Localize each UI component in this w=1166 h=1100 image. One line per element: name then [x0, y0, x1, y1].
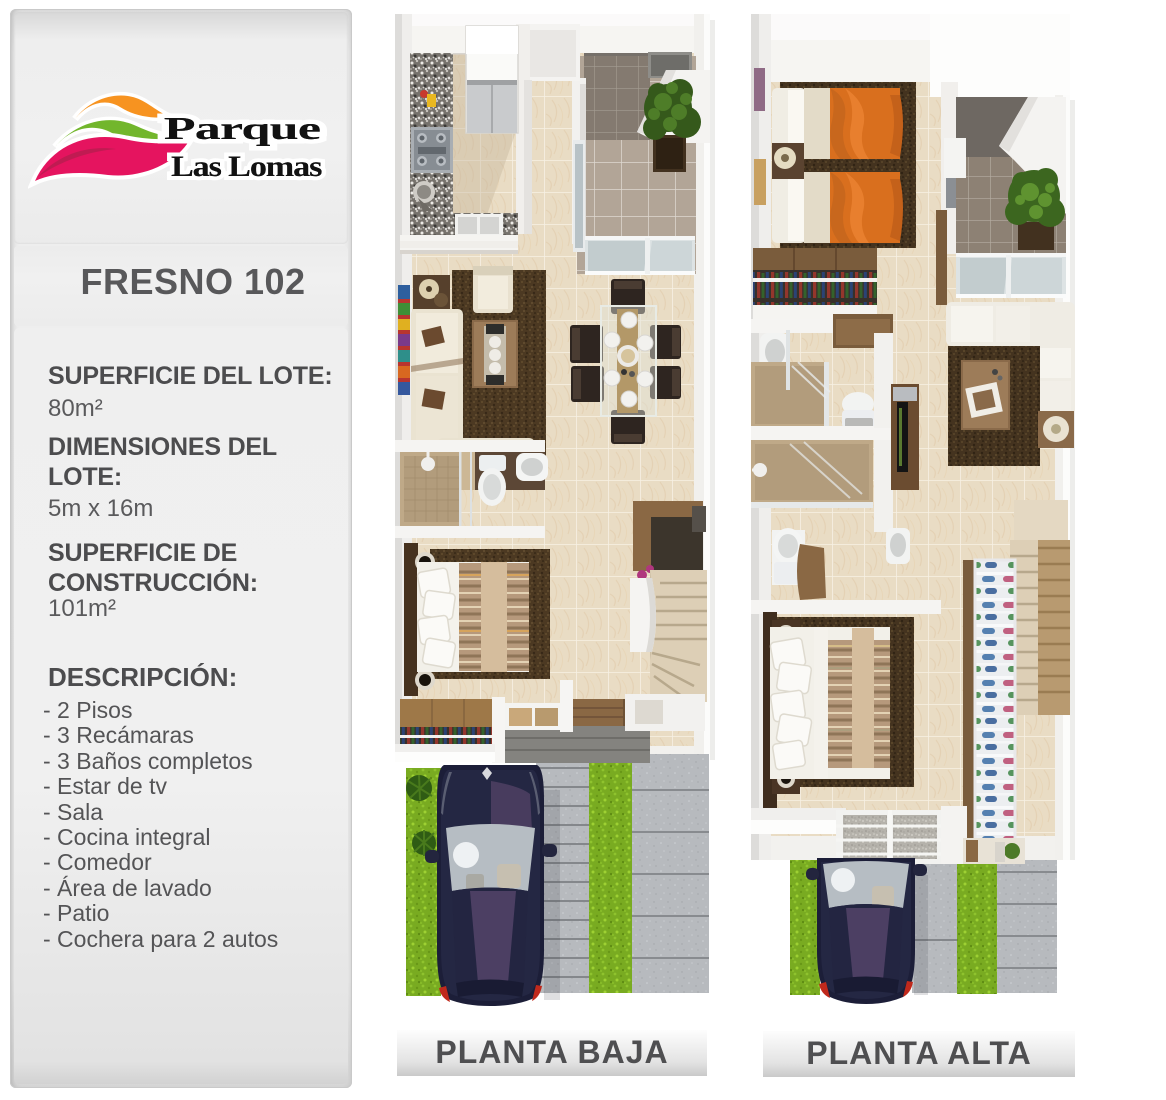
svg-text:Parque: Parque — [164, 111, 321, 146]
svg-text:Las Lomas: Las Lomas — [171, 149, 322, 183]
